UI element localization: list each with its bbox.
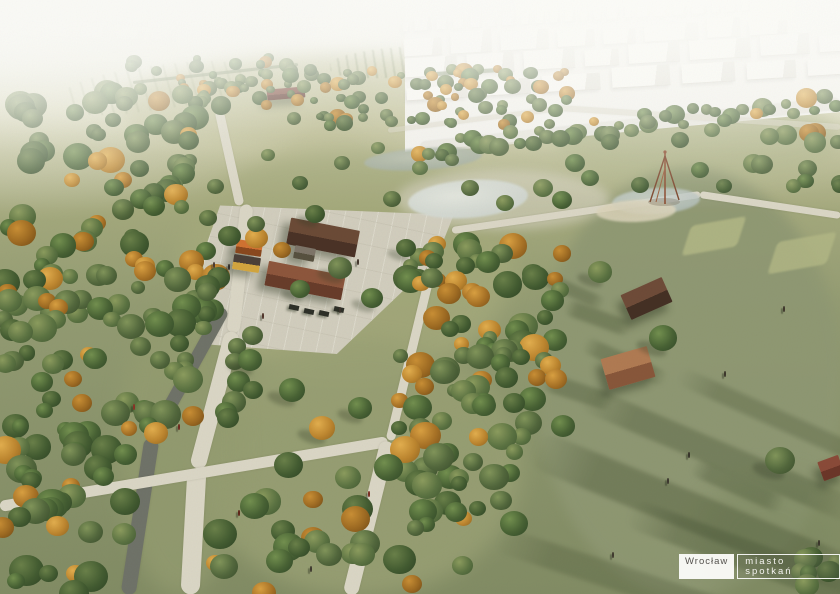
park-aerial-render: Wrocław miasto spotkań bbox=[0, 0, 840, 594]
grain-texture bbox=[0, 0, 840, 594]
watermark: Wrocław miasto spotkań bbox=[679, 554, 840, 579]
watermark-city-label: Wrocław bbox=[679, 554, 734, 579]
watermark-slogan-label: miasto spotkań bbox=[737, 554, 840, 579]
